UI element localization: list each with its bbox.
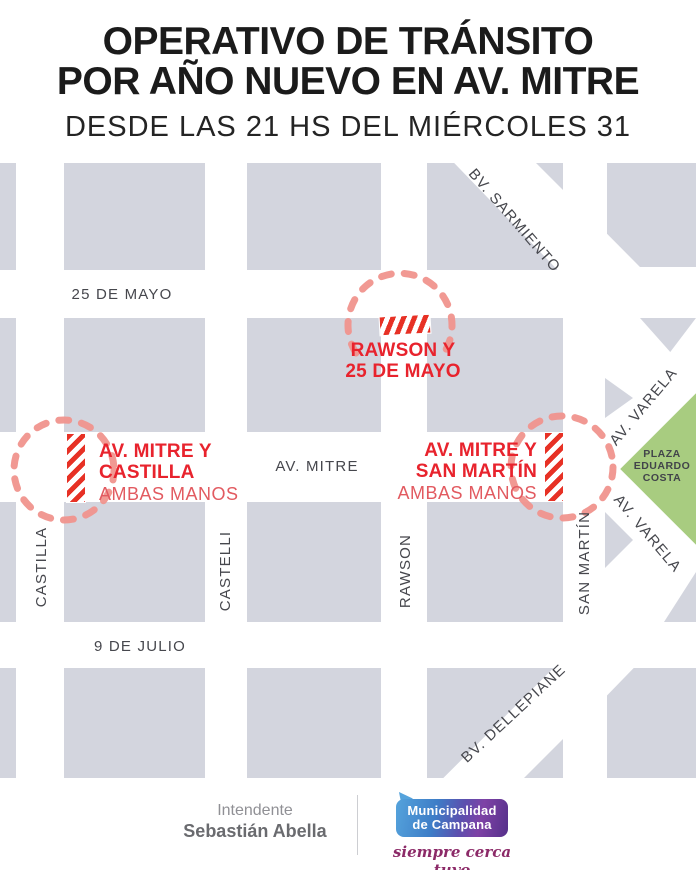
city-block [536, 163, 563, 190]
city-block [524, 739, 563, 778]
official-title: Intendente [180, 802, 330, 820]
city-block [607, 163, 696, 267]
traffic-operation-poster: OPERATIVO DE TRÁNSITO POR AÑO NUEVO EN A… [0, 0, 696, 870]
city-block [64, 668, 205, 778]
city-block [0, 318, 16, 432]
barrier-icon-rawson [379, 314, 432, 337]
closure-label-rawson: RAWSON Y 25 DE MAYO [313, 340, 493, 382]
poster-header: OPERATIVO DE TRÁNSITO POR AÑO NUEVO EN A… [0, 22, 696, 144]
street-label-25-de-mayo: 25 DE MAYO [62, 285, 182, 305]
closure-label-castilla: AV. MITRE Y CASTILLA AMBAS MANOS [99, 441, 289, 505]
street-label-castelli: CASTELLI [216, 511, 236, 631]
page-subtitle: DESDE LAS 21 HS DEL MIÉRCOLES 31 [0, 111, 696, 144]
street-label-san-martin: SAN MARTÍN [575, 498, 595, 628]
municipality-slogan: siempre cerca tuyo [382, 843, 522, 870]
barrier-icon-san-martin [544, 432, 564, 502]
street-label-rawson: RAWSON [396, 511, 416, 631]
city-block [0, 163, 16, 270]
city-block [607, 668, 696, 778]
city-block [64, 502, 205, 622]
barrier-icon-castilla [66, 433, 86, 503]
city-block [664, 572, 696, 622]
city-block [247, 163, 381, 270]
closure-note-castilla: AMBAS MANOS [99, 484, 289, 505]
footer-divider [357, 795, 358, 855]
city-block [0, 668, 16, 778]
street-label-9-de-julio: 9 DE JULIO [80, 637, 200, 657]
street-label-castilla: CASTILLA [32, 507, 52, 627]
official-name: Sebastián Abella [160, 821, 350, 842]
city-block [64, 163, 205, 270]
closure-note-san-martin: AMBAS MANOS [355, 483, 537, 504]
closure-label-san-martin: AV. MITRE Y SAN MARTÍN AMBAS MANOS [355, 440, 537, 504]
municipality-logo: Municipalidad de Campana [396, 799, 508, 837]
page-title-line2: POR AÑO NUEVO EN AV. MITRE [0, 62, 696, 102]
city-block [427, 502, 563, 622]
city-block [640, 318, 696, 352]
city-block [0, 502, 16, 622]
city-block [64, 318, 205, 432]
plaza-label: PLAZA EDUARDO COSTA [630, 448, 694, 484]
page-title-line1: OPERATIVO DE TRÁNSITO [0, 22, 696, 62]
city-block [247, 668, 381, 778]
city-block [247, 502, 381, 622]
